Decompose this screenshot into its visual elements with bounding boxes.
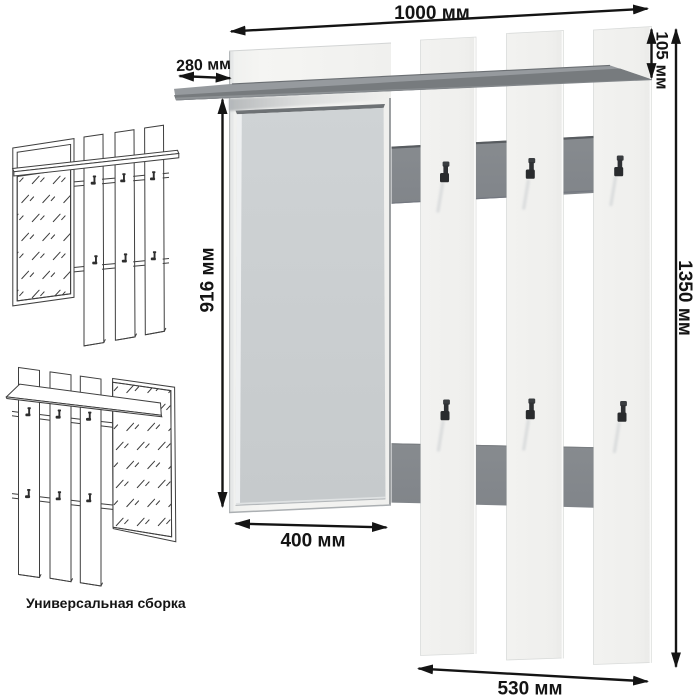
svg-text:530 мм: 530 мм <box>497 678 562 699</box>
svg-text:280 мм: 280 мм <box>176 56 231 75</box>
svg-text:400 мм: 400 мм <box>280 530 345 551</box>
svg-text:Универсальная сборка: Универсальная сборка <box>26 595 186 611</box>
svg-text:1000 мм: 1000 мм <box>394 3 470 24</box>
svg-text:916 мм: 916 мм <box>197 247 218 312</box>
svg-text:105 мм: 105 мм <box>652 31 671 89</box>
svg-text:1350 мм: 1350 мм <box>674 260 695 336</box>
